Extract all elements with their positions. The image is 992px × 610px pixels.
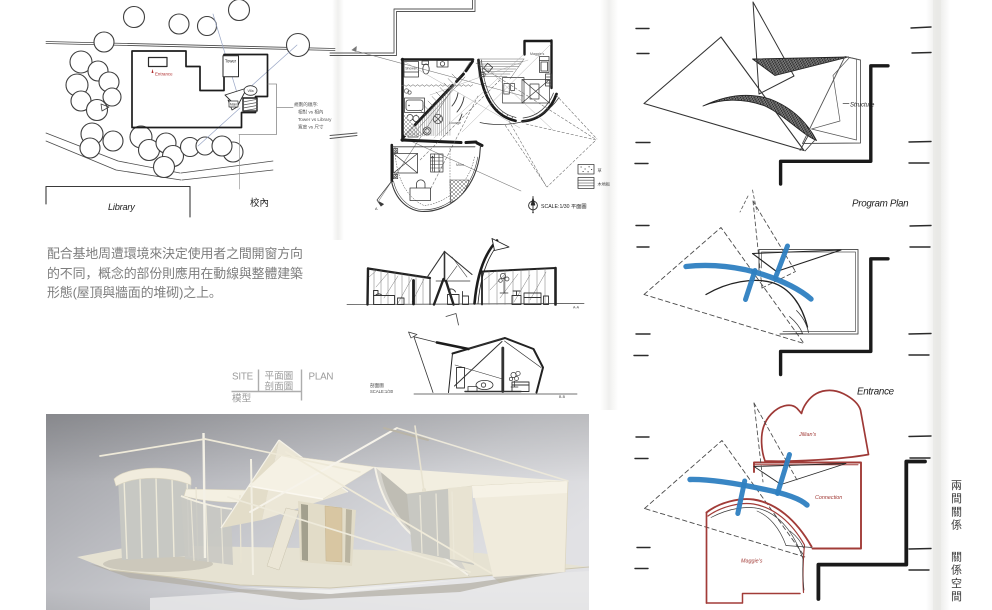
svg-text:木地板: 木地板 <box>598 181 611 188</box>
svg-text:Main: Main <box>230 103 237 107</box>
svg-text:剖面圖: 剖面圖 <box>370 382 384 389</box>
svg-text:草: 草 <box>598 167 602 174</box>
svg-text:規劃的順序:: 規劃的順序: <box>294 101 318 108</box>
svg-text:Lounge: Lounge <box>449 121 461 125</box>
svg-text:關: 關 <box>951 551 962 564</box>
svg-text:Mom: Mom <box>456 163 464 167</box>
svg-text:SCALE:1/30: SCALE:1/30 <box>370 389 394 394</box>
svg-text:間: 間 <box>951 492 962 505</box>
svg-text:Maggie's: Maggie's <box>741 559 763 565</box>
svg-text:Entrance: Entrance <box>857 387 895 398</box>
svg-text:A-A: A-A <box>573 306 580 310</box>
svg-text:係: 係 <box>951 564 962 577</box>
svg-text:SITE: SITE <box>232 372 254 383</box>
svg-text:Tower vs Library: Tower vs Library <box>298 117 332 122</box>
svg-text:兩: 兩 <box>951 480 962 492</box>
svg-text:Villa: Villa <box>248 89 254 93</box>
svg-text:Connection: Connection <box>815 495 842 501</box>
svg-text:平面圖: 平面圖 <box>265 371 294 382</box>
svg-text:剖面圖: 剖面圖 <box>265 381 294 393</box>
svg-text:係: 係 <box>951 519 962 532</box>
svg-text:模型: 模型 <box>232 393 252 405</box>
svg-text:Tower: Tower <box>225 59 237 64</box>
svg-text:關: 關 <box>951 505 962 518</box>
svg-text:Program Plan: Program Plan <box>852 199 908 210</box>
svg-text:間: 間 <box>951 590 962 603</box>
svg-text:Jillian's: Jillian's <box>798 432 817 438</box>
svg-text:相對 vs 相內: 相對 vs 相內 <box>298 109 324 116</box>
svg-text:Shower: Shower <box>405 67 417 71</box>
svg-text:B-B: B-B <box>559 395 566 399</box>
svg-text:Library: Library <box>108 202 136 212</box>
svg-text:空: 空 <box>951 576 962 590</box>
svg-text:Entrance: Entrance <box>155 72 173 77</box>
svg-text:校內: 校內 <box>250 197 269 209</box>
svg-text:PLAN: PLAN <box>309 372 334 383</box>
svg-text:SCALE:1/30 平面圖: SCALE:1/30 平面圖 <box>541 203 587 210</box>
svg-text:寬度 vs 尺寸: 寬度 vs 尺寸 <box>298 124 324 131</box>
